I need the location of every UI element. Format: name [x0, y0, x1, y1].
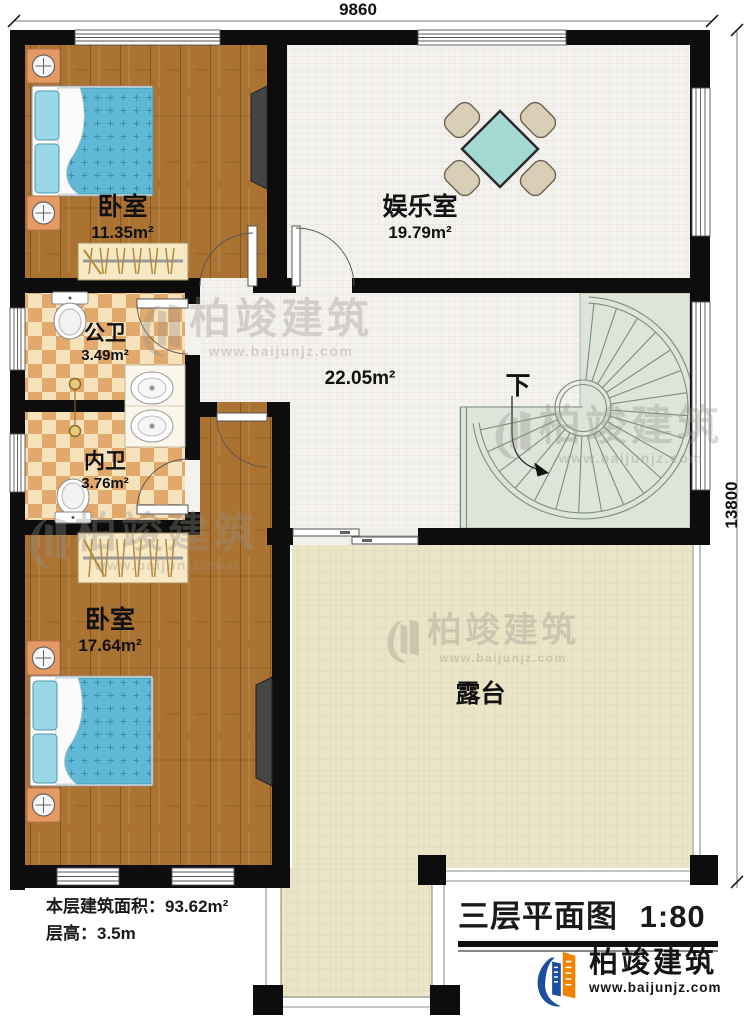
- wardrobe: [78, 243, 188, 280]
- floor-height-text: 层高：3.5m: [46, 920, 228, 947]
- window: [692, 302, 710, 490]
- window: [10, 434, 25, 492]
- window: [692, 88, 710, 236]
- room-name: 公卫: [50, 322, 160, 347]
- room-label-terrace: 露台: [428, 680, 533, 710]
- brand-name: 柏竣建筑: [589, 948, 722, 980]
- room-name: 卧室: [55, 193, 190, 223]
- bed: [32, 86, 153, 196]
- room-name: 娱乐室: [350, 193, 490, 223]
- window: [10, 308, 25, 370]
- brand-logo[interactable]: 柏竣建筑 www.baijunjz.com: [530, 948, 722, 1008]
- bed: [30, 676, 153, 786]
- terrace-post: [690, 855, 718, 885]
- plan-scale: 1:80: [640, 899, 706, 934]
- info-block: 本层建筑面积：93.62m² 层高：3.5m: [46, 893, 228, 947]
- tv: [251, 86, 267, 189]
- room-name: 卧室: [45, 606, 175, 636]
- room-label-private-bath: 内卫 3.76m²: [50, 450, 160, 492]
- room-label-public-bath: 公卫 3.49m²: [50, 322, 160, 364]
- terrace-extension-floor: [281, 868, 432, 998]
- window: [75, 30, 220, 45]
- terrace-post: [430, 985, 460, 1015]
- room-label-bedroom-bottom: 卧室 17.64m²: [45, 606, 175, 656]
- plan-title: 三层平面图 1:80: [458, 891, 718, 947]
- stair-down-label: 下: [498, 372, 538, 402]
- room-name: 内卫: [50, 450, 160, 475]
- window: [418, 30, 566, 45]
- room-label-entertainment: 娱乐室 19.79m²: [350, 193, 490, 243]
- brand-logo-icon: [530, 948, 582, 1008]
- terrace-post: [418, 855, 446, 885]
- room-area: 17.64m²: [45, 636, 175, 656]
- terrace-post: [253, 985, 283, 1015]
- plan-title-text: 三层平面图: [458, 899, 618, 934]
- faucet: [149, 423, 154, 428]
- nightstand: [27, 49, 60, 83]
- window: [172, 868, 234, 885]
- sink-counter: [125, 365, 185, 447]
- room-label-hall-area: 22.05m²: [295, 368, 425, 390]
- faucet: [149, 385, 154, 390]
- dimension-top: 9860: [318, 0, 398, 20]
- room-area: 3.76m²: [50, 475, 160, 493]
- wardrobe: [78, 533, 188, 583]
- room-area: 11.35m²: [55, 223, 190, 243]
- nightstand: [27, 788, 60, 822]
- room-area: 19.79m²: [350, 223, 490, 243]
- dimension-right: 13800: [722, 465, 742, 545]
- title-block: 三层平面图 1:80: [458, 891, 718, 952]
- brand-url: www.baijunjz.com: [589, 980, 722, 995]
- building-area-text: 本层建筑面积：93.62m²: [46, 893, 228, 920]
- floor-plan-page: 柏竣建筑www.baijunjz.com 柏竣建筑www.baijunjz.co…: [0, 0, 750, 1024]
- room-label-bedroom-top: 卧室 11.35m²: [55, 193, 190, 243]
- tv: [256, 677, 272, 786]
- floor-plan-drawing: [0, 0, 750, 1024]
- window: [57, 868, 119, 885]
- room-area: 3.49m²: [50, 347, 160, 365]
